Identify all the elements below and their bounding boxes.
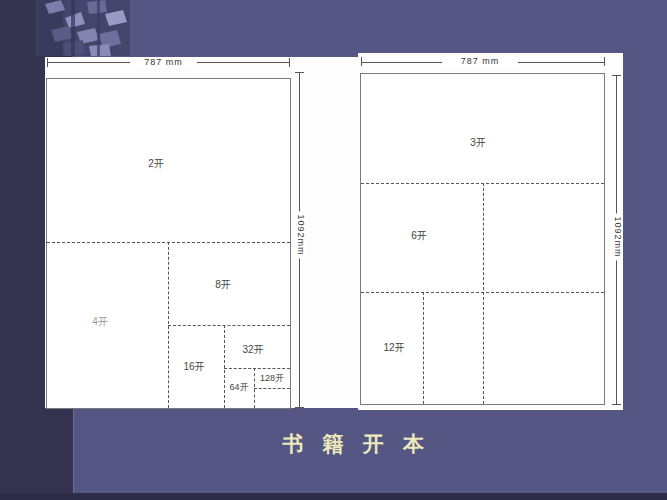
cell-label-3kai: 3开 bbox=[470, 136, 486, 150]
right-divider-h2 bbox=[361, 292, 604, 293]
cell-label-128kai: 128开 bbox=[260, 372, 284, 385]
left-width-dimension: 787 mm bbox=[130, 57, 197, 68]
left-paper-sheet: 2开 4开 8开 16开 32开 64开 128开 bbox=[46, 78, 291, 409]
right-divider-v1 bbox=[483, 183, 484, 404]
bottom-strip bbox=[0, 493, 667, 500]
right-dim-line-a bbox=[362, 62, 442, 63]
cell-label-8kai: 8开 bbox=[215, 278, 231, 292]
left-height-dimension: 1092mm bbox=[295, 211, 306, 258]
cell-label-6kai: 6开 bbox=[411, 229, 427, 243]
right-paper-sheet: 3开 6开 12开 bbox=[360, 73, 605, 405]
left-divider-h3 bbox=[224, 368, 290, 369]
left-divider-h4 bbox=[254, 388, 290, 389]
slide-title: 书 籍 开 本 bbox=[0, 430, 667, 458]
slide: 787 mm 2开 4开 8开 16开 32开 64开 128开 1092mm bbox=[0, 0, 667, 500]
cell-label-12kai: 12开 bbox=[383, 341, 404, 355]
right-hdim-cap-bottom bbox=[612, 404, 621, 405]
right-dim-tick-right bbox=[604, 57, 605, 66]
left-dim-line-b bbox=[197, 62, 289, 63]
right-diagram: 787 mm 3开 6开 12开 1092mm bbox=[358, 53, 623, 410]
right-width-dimension: 787 mm bbox=[442, 56, 518, 67]
cell-label-16kai: 16开 bbox=[183, 360, 204, 374]
left-divider-v2 bbox=[224, 325, 225, 408]
left-dim-tick-right bbox=[289, 58, 290, 67]
mid-dim-cap-bottom bbox=[295, 407, 304, 408]
right-divider-v2 bbox=[423, 292, 424, 404]
cell-label-32kai: 32开 bbox=[242, 343, 263, 357]
cell-label-2kai: 2开 bbox=[148, 157, 164, 171]
cell-label-4kai: 4开 bbox=[92, 315, 108, 329]
left-diagram: 787 mm 2开 4开 8开 16开 32开 64开 128开 1092mm bbox=[45, 57, 358, 408]
right-height-dimension: 1092mm bbox=[612, 213, 623, 260]
left-dim-line-a bbox=[48, 62, 130, 63]
decorative-image bbox=[35, 0, 130, 56]
cell-label-64kai: 64开 bbox=[229, 381, 248, 394]
right-dim-line-b bbox=[518, 62, 604, 63]
left-divider-h2 bbox=[168, 325, 290, 326]
